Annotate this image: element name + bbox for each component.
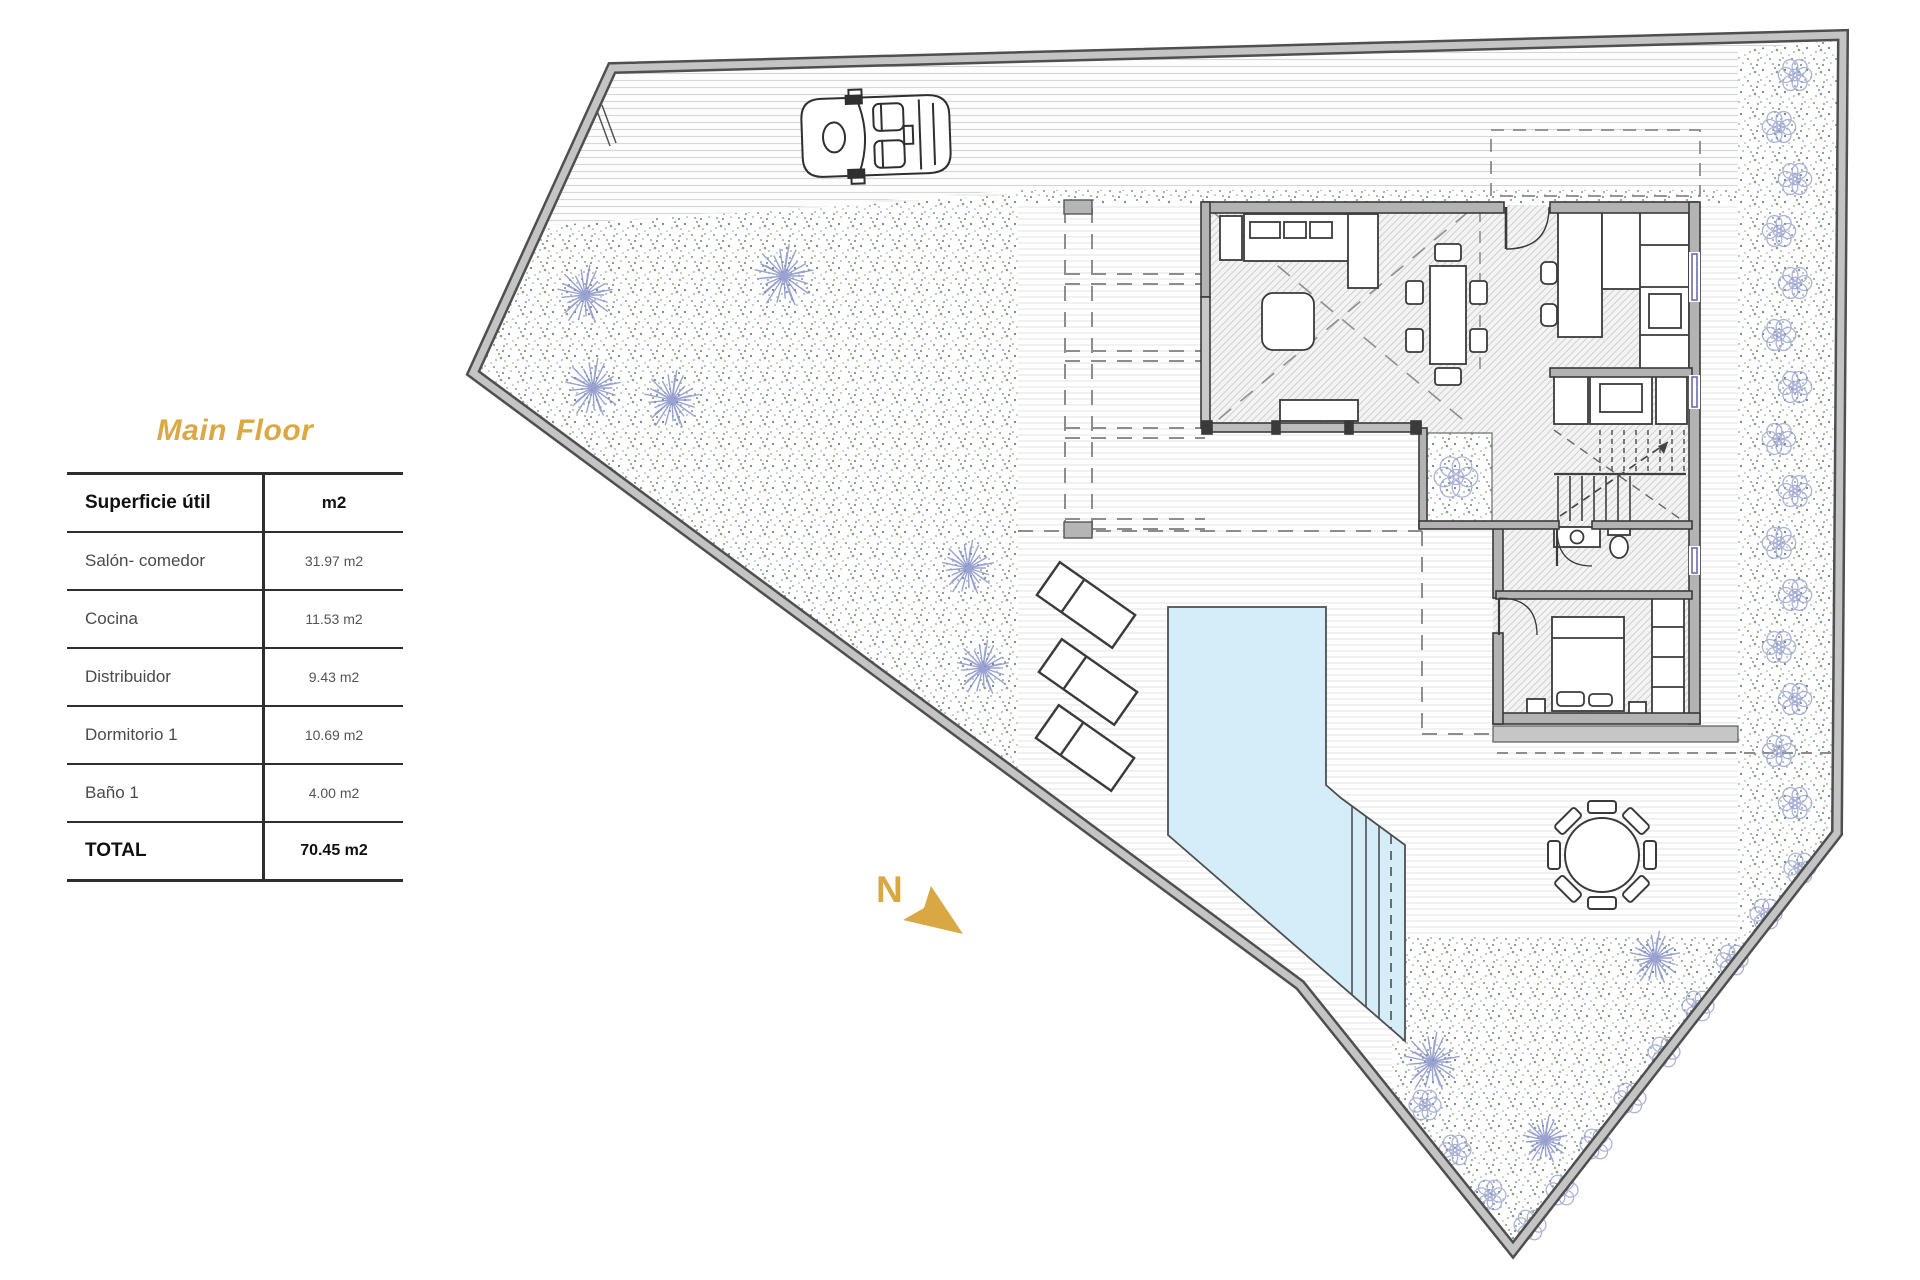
area-panel: Main Floor Superficie útil m2 Salón- com… [67,414,403,882]
bathroom-sink [1571,531,1584,544]
table-row: Distribuidor9.43 m2 [67,648,403,706]
table-row: Baño 14.00 m2 [67,764,403,822]
garden-strip [1018,190,1740,203]
total-value: 70.45 m2 [264,822,404,881]
closet-inner [1600,384,1642,412]
room-area: 10.69 m2 [264,706,404,764]
table-row: Dormitorio 110.69 m2 [67,706,403,764]
window [1692,548,1697,573]
dining-chair [1470,281,1487,304]
round-table [1565,818,1639,892]
table-header-row: Superficie útil m2 [67,474,403,533]
kitchen-cabinet [1602,211,1642,289]
room-label: Distribuidor [67,648,264,706]
dining-chair [1406,281,1423,304]
pergola-post [1064,522,1092,538]
room-label: Salón- comedor [67,532,264,590]
north-label: N [876,869,903,910]
outdoor-chair [1644,841,1656,869]
outdoor-chair [1548,841,1560,869]
room-label: Cocina [67,590,264,648]
sofa-cushion [1284,222,1306,238]
tv-bench [1280,400,1358,421]
toilet-bowl [1610,536,1628,558]
nightstand [1527,699,1545,714]
room-area: 9.43 m2 [264,648,404,706]
north-arrow: N [876,869,963,934]
closet [1554,374,1588,424]
bar-stool [1541,304,1557,326]
sofa-cushion [1310,222,1332,238]
dining-chair [1435,368,1461,385]
table-row: Salón- comedor31.97 m2 [67,532,403,590]
bed-pillow [1589,694,1612,706]
column-header: m2 [264,474,404,533]
window [1692,377,1697,407]
table-total-row: TOTAL 70.45 m2 [67,822,403,881]
deck-step-band [1493,726,1738,742]
sofa-cushion [1250,222,1280,238]
car-icon [800,86,951,185]
closet [1656,374,1687,424]
coffee-table [1262,293,1314,350]
bar-stool [1541,262,1557,284]
garden-left [473,194,1018,777]
sofa-side-table [1220,216,1242,260]
bed-pillow [1557,692,1584,706]
dining-chair [1406,329,1423,352]
kitchen-sink [1649,294,1681,328]
column-header: Superficie útil [67,474,264,533]
room-area: 11.53 m2 [264,590,404,648]
pergola-post [1064,200,1092,214]
dining-table [1430,266,1466,364]
room-area: 4.00 m2 [264,764,404,822]
kitchen-island [1558,211,1602,337]
outdoor-chair [1588,897,1616,909]
total-label: TOTAL [67,822,264,881]
north-arrow-icon [903,886,963,934]
area-table: Superficie útil m2 Salón- comedor31.97 m… [67,472,403,882]
window [1692,254,1697,300]
outdoor-round-table [1548,801,1656,909]
room-area: 31.97 m2 [264,532,404,590]
dining-chair [1470,329,1487,352]
dining-chair [1435,244,1461,261]
sofa-chaise [1348,214,1378,288]
kitchen-counter [1640,211,1689,372]
room-label: Baño 1 [67,764,264,822]
room-label: Dormitorio 1 [67,706,264,764]
outdoor-chair [1588,801,1616,813]
courtyard-planter [1422,433,1492,522]
page-title: Main Floor [67,414,403,448]
table-row: Cocina11.53 m2 [67,590,403,648]
